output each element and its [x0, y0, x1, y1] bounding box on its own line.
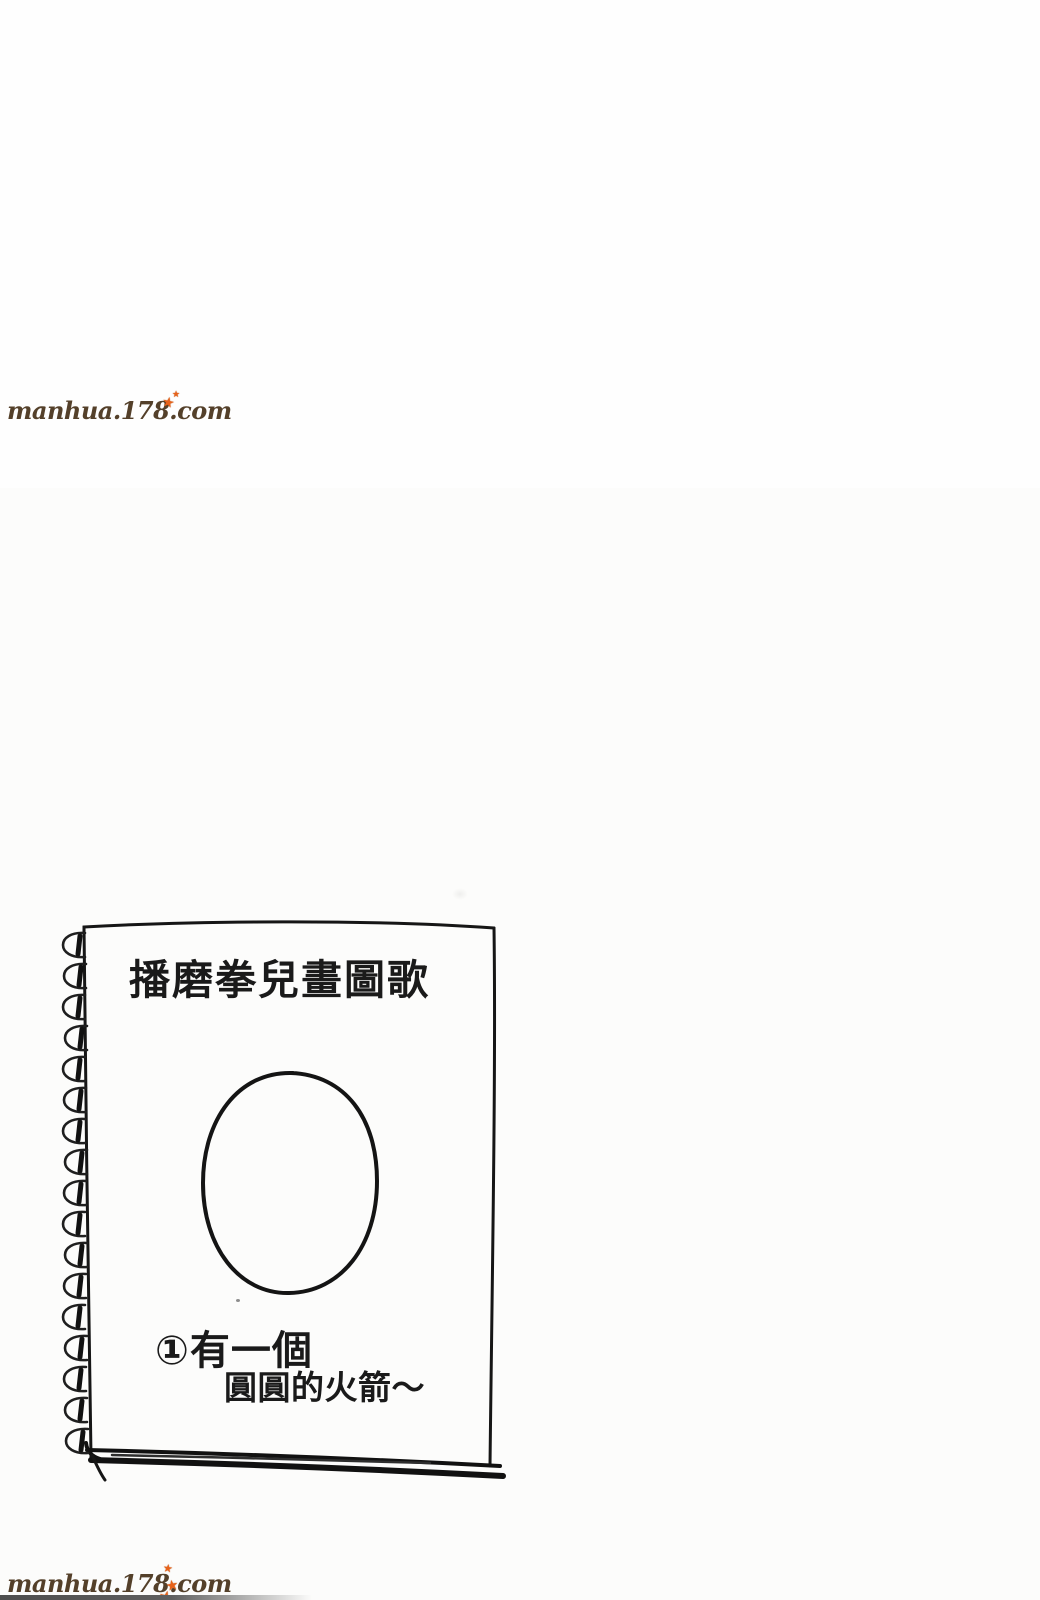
star-icon: ★ — [161, 395, 176, 411]
ink-speck — [236, 1299, 240, 1302]
manga-page: 播磨拳兒畫圖歌 ①有一個 圓圓的火箭～ manhua.178.com ★ ★ m… — [0, 0, 1040, 1600]
notebook-title: 播磨拳兒畫圖歌 — [129, 960, 430, 1001]
caption-line-2: 圓圓的火箭～ — [224, 1371, 425, 1404]
notebook-right-edge — [490, 928, 495, 1466]
watermark-bottom: manhua.178.com — [7, 1572, 232, 1596]
caption-line-1: ①有一個 — [155, 1331, 313, 1371]
scan-edge-shadow — [0, 1595, 312, 1600]
oval-drawing — [203, 1073, 377, 1293]
notebook-left-edge — [84, 927, 91, 1457]
star-icon: ★ — [162, 1562, 173, 1574]
notebook-top-edge — [84, 922, 494, 934]
watermark-top: manhua.178.com — [7, 399, 232, 423]
paper-smudge — [452, 888, 468, 900]
